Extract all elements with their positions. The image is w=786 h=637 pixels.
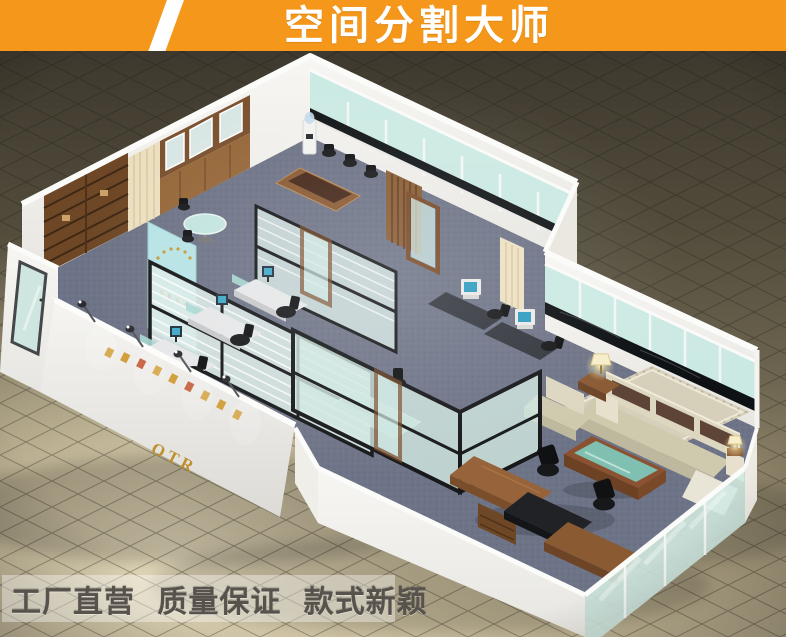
vignette [0, 0, 786, 637]
office-render: OTR [0, 0, 786, 637]
slogan-text: 工厂直营 质量保证 款式新颖 [2, 577, 428, 621]
banner-slash-decoration [147, 0, 185, 51]
slogan-band: 工厂直营 质量保证 款式新颖 [2, 575, 395, 622]
banner-title: 空间分割大师 [284, 6, 554, 46]
promo-image: OTR 空间分割大师 工厂直营 质量保证 款式新颖 [0, 0, 786, 637]
promo-banner: 空间分割大师 [0, 0, 786, 51]
